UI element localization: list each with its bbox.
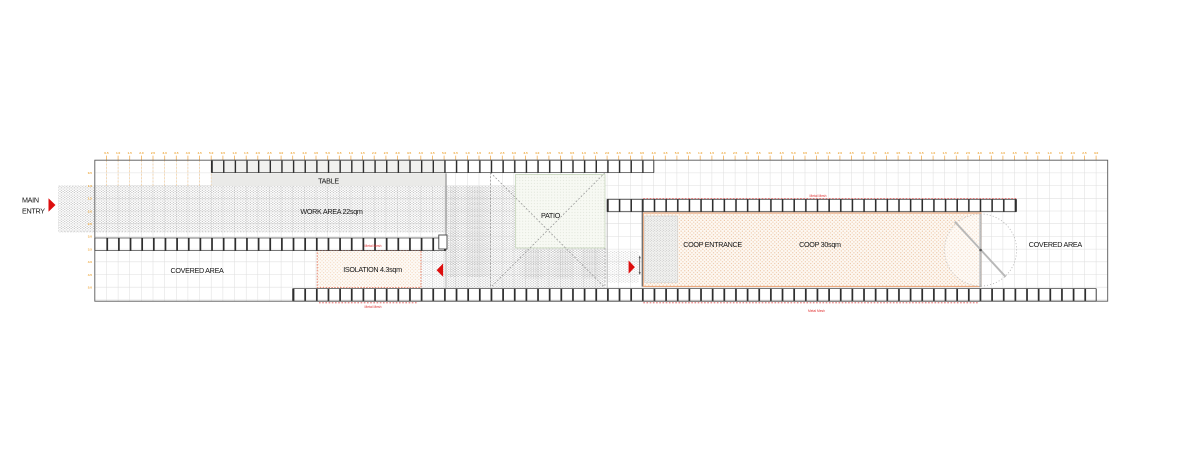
svg-text:COVERED AREA: COVERED AREA	[170, 266, 224, 275]
svg-text:MAIN: MAIN	[22, 196, 39, 205]
svg-text:1.5: 1.5	[1059, 151, 1064, 155]
svg-text:0.5: 0.5	[919, 151, 924, 155]
svg-text:4.5: 4.5	[780, 151, 785, 155]
svg-text:2.0: 2.0	[605, 151, 610, 155]
svg-text:5.0: 5.0	[791, 151, 796, 155]
svg-text:4.0: 4.0	[535, 151, 540, 155]
svg-text:0.5: 0.5	[1036, 151, 1041, 155]
svg-text:5.0: 5.0	[1024, 151, 1029, 155]
svg-text:4.5: 4.5	[663, 151, 668, 155]
svg-text:4.5: 4.5	[1012, 151, 1017, 155]
svg-text:0.5: 0.5	[88, 171, 93, 175]
svg-text:2.0: 2.0	[954, 151, 959, 155]
svg-text:2.5: 2.5	[966, 151, 971, 155]
svg-text:5.0: 5.0	[558, 151, 563, 155]
svg-text:Metal Mesh: Metal Mesh	[364, 305, 381, 309]
svg-text:Metal Mesh: Metal Mesh	[364, 244, 381, 248]
svg-text:4.0: 4.0	[302, 151, 307, 155]
svg-text:2.5: 2.5	[384, 151, 389, 155]
svg-text:3.5: 3.5	[291, 151, 296, 155]
svg-text:2.0: 2.0	[721, 151, 726, 155]
svg-text:2.5: 2.5	[500, 151, 505, 155]
svg-text:5.0: 5.0	[675, 151, 680, 155]
svg-text:0.5: 0.5	[686, 151, 691, 155]
svg-text:4.5: 4.5	[314, 151, 319, 155]
svg-text:3.0: 3.0	[395, 151, 400, 155]
svg-text:1.0: 1.0	[1047, 151, 1052, 155]
svg-text:2.0: 2.0	[139, 151, 144, 155]
svg-text:0.5: 0.5	[570, 151, 575, 155]
svg-text:5.0: 5.0	[88, 286, 93, 290]
svg-text:0.5: 0.5	[104, 151, 109, 155]
svg-text:0.5: 0.5	[454, 151, 459, 155]
svg-text:1.5: 1.5	[477, 151, 482, 155]
svg-text:1.5: 1.5	[826, 151, 831, 155]
svg-text:1.5: 1.5	[88, 197, 93, 201]
svg-text:3.0: 3.0	[977, 151, 982, 155]
svg-text:2.5: 2.5	[849, 151, 854, 155]
svg-text:3.5: 3.5	[640, 151, 645, 155]
svg-text:5.0: 5.0	[908, 151, 913, 155]
svg-text:4.0: 4.0	[768, 151, 773, 155]
svg-text:2.5: 2.5	[151, 151, 156, 155]
svg-text:4.0: 4.0	[884, 151, 889, 155]
svg-text:3.5: 3.5	[174, 151, 179, 155]
svg-text:2.0: 2.0	[256, 151, 261, 155]
svg-text:COVERED AREA: COVERED AREA	[1029, 240, 1083, 249]
svg-text:4.5: 4.5	[88, 273, 93, 277]
svg-text:3.5: 3.5	[407, 151, 412, 155]
svg-text:2.0: 2.0	[1071, 151, 1076, 155]
svg-text:1.0: 1.0	[232, 151, 237, 155]
svg-text:3.0: 3.0	[1094, 151, 1099, 155]
svg-text:4.5: 4.5	[547, 151, 552, 155]
svg-text:2.5: 2.5	[1082, 151, 1087, 155]
svg-text:0.5: 0.5	[803, 151, 808, 155]
svg-text:3.0: 3.0	[861, 151, 866, 155]
svg-text:TABLE: TABLE	[318, 177, 339, 186]
svg-text:4.5: 4.5	[197, 151, 202, 155]
svg-text:PATIO: PATIO	[541, 211, 561, 220]
svg-text:4.5: 4.5	[430, 151, 435, 155]
svg-text:ISOLATION 4.3sqm: ISOLATION 4.3sqm	[343, 265, 402, 274]
svg-text:1.0: 1.0	[116, 151, 121, 155]
svg-text:3.0: 3.0	[163, 151, 168, 155]
svg-text:4.5: 4.5	[896, 151, 901, 155]
svg-text:COOP 30sqm: COOP 30sqm	[799, 240, 841, 249]
svg-text:1.0: 1.0	[465, 151, 470, 155]
svg-text:ENTRY: ENTRY	[22, 206, 45, 215]
svg-text:2.0: 2.0	[88, 209, 93, 213]
svg-text:0.5: 0.5	[221, 151, 226, 155]
svg-text:1.5: 1.5	[593, 151, 598, 155]
svg-text:2.5: 2.5	[733, 151, 738, 155]
svg-text:3.5: 3.5	[756, 151, 761, 155]
svg-text:1.0: 1.0	[698, 151, 703, 155]
svg-text:Metal Mesh: Metal Mesh	[809, 194, 826, 198]
svg-text:1.0: 1.0	[349, 151, 354, 155]
svg-text:2.0: 2.0	[372, 151, 377, 155]
svg-text:4.0: 4.0	[88, 260, 93, 264]
svg-text:3.0: 3.0	[512, 151, 517, 155]
svg-text:5.0: 5.0	[442, 151, 447, 155]
svg-text:1.5: 1.5	[943, 151, 948, 155]
svg-text:1.5: 1.5	[128, 151, 133, 155]
svg-text:4.0: 4.0	[1001, 151, 1006, 155]
svg-text:2.5: 2.5	[617, 151, 622, 155]
svg-text:3.5: 3.5	[523, 151, 528, 155]
svg-text:4.0: 4.0	[651, 151, 656, 155]
svg-text:2.5: 2.5	[88, 222, 93, 226]
svg-text:1.0: 1.0	[931, 151, 936, 155]
svg-text:3.5: 3.5	[989, 151, 994, 155]
svg-text:3.0: 3.0	[628, 151, 633, 155]
svg-text:2.0: 2.0	[488, 151, 493, 155]
svg-text:1.0: 1.0	[582, 151, 587, 155]
svg-text:2.0: 2.0	[838, 151, 843, 155]
svg-text:1.5: 1.5	[710, 151, 715, 155]
svg-text:3.0: 3.0	[88, 235, 93, 239]
svg-text:5.0: 5.0	[209, 151, 214, 155]
svg-text:3.0: 3.0	[279, 151, 284, 155]
svg-text:COOP ENTRANCE: COOP ENTRANCE	[683, 240, 742, 249]
svg-text:1.0: 1.0	[814, 151, 819, 155]
svg-text:1.0: 1.0	[88, 184, 93, 188]
svg-text:4.0: 4.0	[186, 151, 191, 155]
svg-text:3.0: 3.0	[745, 151, 750, 155]
svg-text:3.5: 3.5	[88, 247, 93, 251]
svg-text:1.5: 1.5	[244, 151, 249, 155]
svg-text:0.5: 0.5	[337, 151, 342, 155]
svg-text:WORK AREA 22sqm: WORK AREA 22sqm	[300, 207, 363, 216]
svg-text:2.5: 2.5	[267, 151, 272, 155]
svg-text:3.5: 3.5	[873, 151, 878, 155]
svg-text:4.0: 4.0	[419, 151, 424, 155]
svg-text:5.0: 5.0	[326, 151, 331, 155]
svg-text:1.5: 1.5	[360, 151, 365, 155]
svg-text:Metal Mesh: Metal Mesh	[808, 309, 825, 313]
